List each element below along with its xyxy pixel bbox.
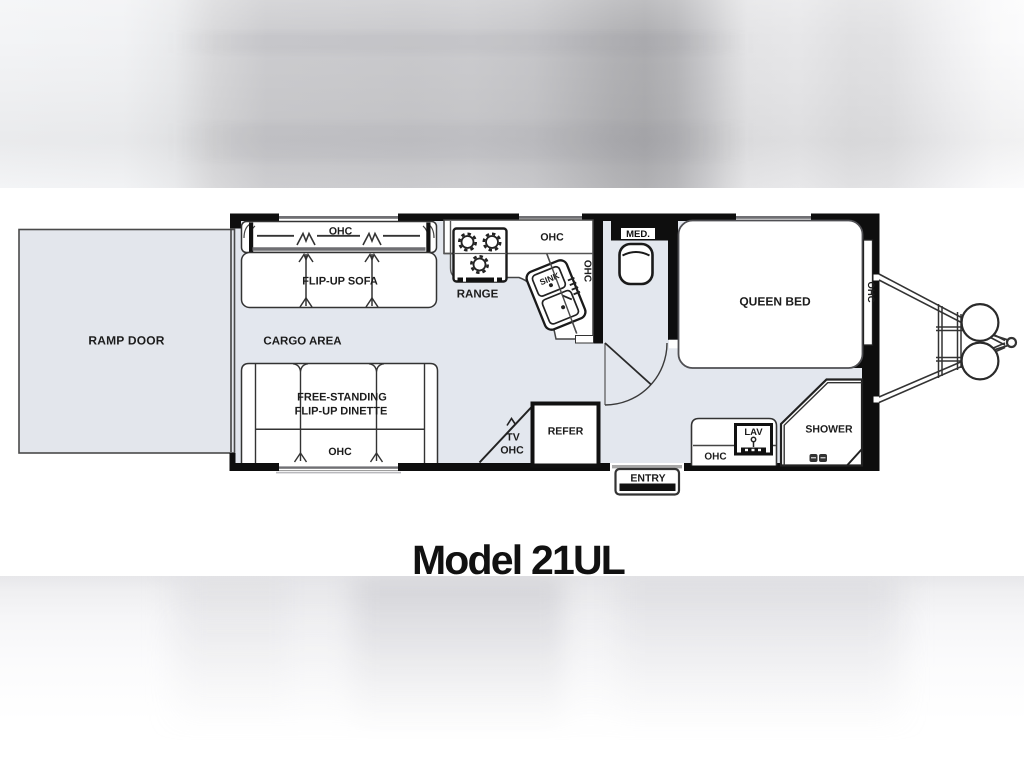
svg-text:OHC: OHC — [329, 226, 353, 238]
svg-text:ENTRY: ENTRY — [630, 473, 665, 485]
svg-text:OHC: OHC — [500, 445, 524, 457]
svg-text:FREE-STANDING: FREE-STANDING — [297, 392, 387, 404]
svg-text:Model 21UL: Model 21UL — [412, 537, 625, 583]
svg-text:OHC: OHC — [540, 232, 564, 244]
svg-text:QUEEN BED: QUEEN BED — [739, 295, 811, 309]
svg-text:MED.: MED. — [626, 229, 650, 240]
svg-text:FLIP-UP DINETTE: FLIP-UP DINETTE — [295, 406, 388, 418]
svg-text:CARGO AREA: CARGO AREA — [263, 336, 341, 348]
svg-text:FLIP-UP SOFA: FLIP-UP SOFA — [302, 276, 378, 288]
svg-text:TV: TV — [506, 432, 519, 444]
svg-text:OHC: OHC — [865, 281, 876, 302]
svg-text:RAMP DOOR: RAMP DOOR — [88, 334, 164, 348]
svg-text:SHOWER: SHOWER — [805, 424, 853, 436]
svg-text:OHC: OHC — [328, 446, 352, 458]
svg-text:OHC: OHC — [704, 452, 726, 463]
svg-text:REFER: REFER — [548, 426, 584, 438]
svg-text:OHC: OHC — [582, 260, 593, 282]
svg-text:RANGE: RANGE — [457, 289, 499, 301]
svg-text:LAV: LAV — [744, 427, 763, 438]
